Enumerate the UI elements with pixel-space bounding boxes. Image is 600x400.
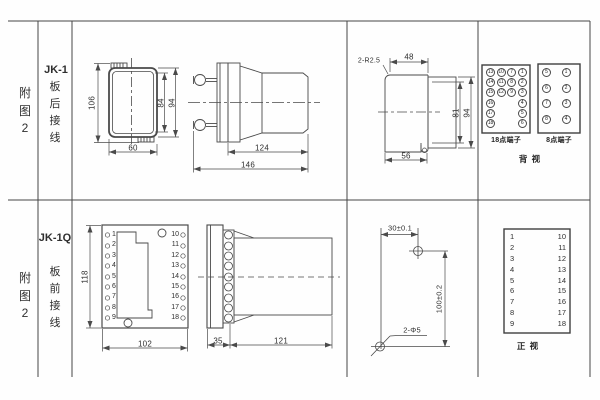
jk1-front-view-drawing	[94, 58, 179, 156]
dim-label-81: 81	[452, 108, 461, 117]
model-label-jk1q: JK-1Q	[39, 232, 71, 244]
terminal-number: 15	[165, 282, 179, 292]
dim-label-121: 121	[274, 337, 288, 346]
figure-char: 2	[22, 120, 29, 138]
terminal-circle: 2	[518, 78, 527, 87]
caption-8pt: 8点端子	[546, 135, 572, 145]
terminal-circle: 3	[562, 99, 571, 108]
terminal-circle: 10	[497, 68, 506, 77]
terminal-number: 14	[548, 276, 566, 287]
terminal-number: 6	[510, 286, 526, 297]
terminal-number: 8	[112, 303, 124, 313]
wiring-char: 线	[50, 130, 61, 147]
terminal-circle: 4	[562, 115, 571, 124]
terminal-number: 2	[112, 240, 124, 250]
hole-spec-label: 2-Φ5	[403, 326, 421, 335]
dim-label-30: 30±0.1	[388, 223, 412, 232]
wiring-char: 线	[50, 315, 61, 332]
terminal-grid-8pt: 5 1 6 2 7 3 8 4	[542, 68, 581, 130]
dim-label-100: 100±0.2	[435, 285, 444, 313]
terminal-number: 11	[165, 240, 179, 250]
terminal-number: 8	[510, 308, 526, 319]
terminal-circle: 14	[486, 78, 495, 87]
front-panel-left-terminal-numbers: 1 2 3 4 5 6 7 8 9	[112, 230, 124, 324]
terminal-circle: 2	[562, 84, 571, 93]
dim-label-94-cutout: 94	[463, 108, 472, 117]
wiring-char: 接	[50, 113, 61, 130]
terminal-number: 4	[112, 261, 124, 271]
dim-label-48: 48	[404, 53, 413, 62]
front-panel-right-terminal-numbers: 10 11 12 13 14 15 16 17 18	[165, 230, 179, 324]
terminal-number: 18	[548, 319, 566, 330]
dim-label-106: 106	[88, 96, 97, 110]
wiring-char: 板	[50, 264, 61, 281]
terminal-number: 9	[510, 319, 526, 330]
front-view-label: 正 视	[517, 340, 539, 352]
wiring-label-row2: 板 前 接 线	[47, 264, 63, 332]
terminal-circle: 17	[486, 109, 495, 118]
terminal-number: 18	[165, 313, 179, 323]
terminal-circle: 11	[497, 78, 506, 87]
terminal-circle: 4	[518, 99, 527, 108]
terminal-number: 10	[165, 230, 179, 240]
caption-18pt: 18点端子	[491, 135, 521, 145]
terminal-table-right-column: 10 11 12 13 14 15 16 17 18	[548, 232, 566, 330]
wiring-char: 后	[50, 96, 61, 113]
terminal-number: 12	[165, 251, 179, 261]
terminal-circle: 8	[507, 78, 516, 87]
terminal-number: 1	[112, 230, 124, 240]
terminal-number: 5	[510, 276, 526, 287]
terminal-circle: 13	[486, 68, 495, 77]
wiring-char: 接	[50, 298, 61, 315]
dim-label-102: 102	[138, 340, 152, 349]
terminal-number: 16	[165, 292, 179, 302]
terminal-number: 12	[548, 254, 566, 265]
terminal-circle: 16	[486, 99, 495, 108]
terminal-circle: 3	[518, 88, 527, 97]
terminal-grid-18pt: 13 10 7 1 14 11 8 2 15 12 9 3 16 4 17 5 …	[486, 68, 528, 129]
terminal-number: 6	[112, 282, 124, 292]
figure-char: 附	[19, 270, 31, 288]
terminal-number: 16	[548, 297, 566, 308]
terminal-circle: 5	[518, 109, 527, 118]
wiring-label-row1: 板 后 接 线	[47, 79, 63, 147]
terminal-circle: 9	[507, 88, 516, 97]
radius-note-label: 2-R2.5	[358, 58, 380, 65]
line-drawing-layer	[0, 0, 600, 400]
dim-label-35: 35	[213, 337, 222, 346]
terminal-number: 10	[548, 232, 566, 243]
terminal-circle: 1	[518, 68, 527, 77]
dim-label-124: 124	[255, 143, 269, 152]
terminal-number: 17	[548, 308, 566, 319]
terminal-number: 1	[510, 232, 526, 243]
rear-view-label: 背 视	[519, 153, 541, 165]
dim-label-146: 146	[241, 160, 255, 169]
jk1q-side-view-drawing	[198, 225, 340, 349]
terminal-circle: 1	[562, 68, 571, 77]
terminal-number: 11	[548, 243, 566, 254]
terminal-number: 17	[165, 303, 179, 313]
figure-char: 附	[19, 85, 31, 103]
technical-figure-sheet: 附 图 2 JK-1 板 后 接 线 附 图 2 JK-1Q 板 前 接 线 1…	[0, 0, 600, 400]
terminal-number: 4	[510, 265, 526, 276]
terminal-circle: 6	[542, 84, 551, 93]
terminal-number: 3	[112, 251, 124, 261]
terminal-circle: 6	[518, 119, 527, 128]
terminal-number: 3	[510, 254, 526, 265]
terminal-number: 13	[165, 261, 179, 271]
figure-label-row1: 附 图 2	[16, 85, 34, 138]
dim-label-94-front: 94	[168, 98, 177, 107]
dim-label-84: 84	[157, 98, 166, 107]
terminal-number: 9	[112, 313, 124, 323]
terminal-table-left-column: 1 2 3 4 5 6 7 8 9	[510, 232, 526, 330]
terminal-number: 15	[548, 286, 566, 297]
dim-label-118: 118	[81, 270, 90, 283]
terminal-number: 7	[510, 297, 526, 308]
terminal-number: 2	[510, 243, 526, 254]
figure-label-row2: 附 图 2	[16, 270, 34, 323]
terminal-number: 13	[548, 265, 566, 276]
terminal-circle: 15	[486, 88, 495, 97]
terminal-circle: 12	[497, 88, 506, 97]
terminal-number: 7	[112, 292, 124, 302]
dim-label-60: 60	[128, 144, 137, 153]
figure-char: 图	[19, 288, 31, 306]
terminal-circle: 5	[542, 68, 551, 77]
dim-label-56: 56	[401, 152, 410, 161]
model-label-jk1: JK-1	[44, 64, 68, 76]
terminal-circle: 18	[486, 119, 495, 128]
terminal-circle: 8	[542, 115, 551, 124]
terminal-number: 14	[165, 272, 179, 282]
wiring-char: 板	[50, 79, 61, 96]
terminal-circle: 7	[542, 99, 551, 108]
terminal-circle: 7	[507, 68, 516, 77]
jk1-side-view-drawing	[188, 63, 320, 173]
wiring-char: 前	[50, 281, 61, 298]
figure-char: 图	[19, 103, 31, 121]
figure-char: 2	[22, 305, 29, 323]
terminal-number: 5	[112, 272, 124, 282]
